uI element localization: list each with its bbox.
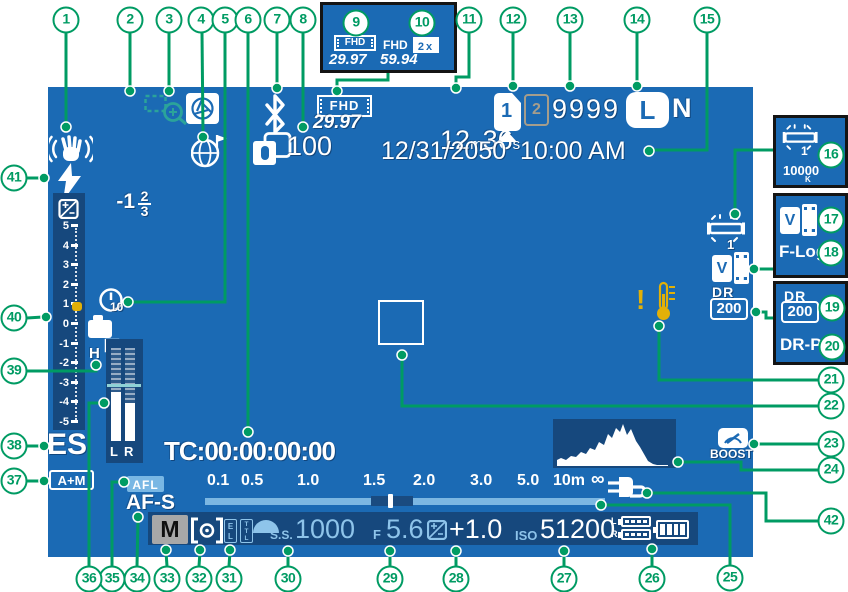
- ev-major-tick: [71, 381, 78, 384]
- distance-label: 0.5: [241, 472, 263, 490]
- callout-12: 12: [500, 7, 527, 34]
- afl-badge: AFL: [127, 476, 164, 492]
- meter-right-dim: [125, 348, 135, 403]
- callout-33: 33: [154, 566, 181, 592]
- movie-rate-1: 29.97: [329, 51, 367, 68]
- ev-major-tick: [71, 342, 78, 345]
- ev-major-tick: [71, 244, 78, 247]
- wb-kelvin-unit: K: [805, 175, 811, 184]
- callout-14: 14: [624, 7, 651, 34]
- movie-fhd-2: FHD: [383, 38, 408, 52]
- exposure-comp-value: +1.0: [449, 514, 502, 545]
- location-icon: [191, 133, 227, 169]
- callout-41: 41: [1, 165, 28, 192]
- exposure-comp-icon: [427, 520, 447, 540]
- white-balance-inset: 1 16 10000 K: [773, 115, 848, 188]
- callout-2: 2: [117, 7, 144, 34]
- callout-7: 7: [264, 7, 291, 34]
- callout-13: 13: [557, 7, 584, 34]
- callout-29: 29: [377, 566, 404, 592]
- ev-major-tick: [71, 224, 78, 227]
- callout-38: 38: [1, 433, 28, 460]
- afl-label: AFL: [132, 478, 158, 492]
- distance-label: 1.0: [297, 472, 319, 490]
- callout-17: 17: [818, 207, 845, 234]
- exposure-comp-icon: [58, 199, 79, 219]
- callout-35: 35: [99, 566, 126, 592]
- callout-8: 8: [290, 7, 317, 34]
- battery-right-icon: [621, 529, 651, 540]
- callout-23: 23: [818, 431, 845, 458]
- film-sim-letter: V: [780, 207, 800, 234]
- shooting-mode-badge: M: [152, 515, 188, 544]
- ev-tick: 2: [55, 279, 69, 291]
- callout-10: 10: [409, 10, 436, 37]
- meter-reference-line: [107, 384, 141, 387]
- histogram: [553, 419, 676, 468]
- dr-priority-label: DR-P: [780, 335, 822, 355]
- focus-position-marker: [388, 494, 393, 508]
- image-quality: N: [672, 93, 692, 124]
- flash-comp-fraction: 23: [138, 190, 151, 218]
- meter-label-l: L: [110, 444, 118, 459]
- callout-25: 25: [717, 565, 744, 592]
- image-transfer-icon: [252, 132, 292, 166]
- callout-21: 21: [818, 367, 845, 394]
- distance-label: 5.0: [517, 472, 539, 490]
- wb-preset-number: 1: [801, 144, 808, 158]
- flash-compensation: -123: [93, 166, 151, 242]
- manual-page: -123 100 FHD 29.97: [0, 0, 848, 592]
- ev-tick: -2: [55, 357, 69, 369]
- callout-18: 18: [818, 240, 845, 267]
- callout-19: 19: [819, 295, 846, 322]
- ev-tick: 4: [55, 240, 69, 252]
- datetime: 12/31/2050 10:00 AM: [381, 137, 626, 166]
- shutter-speed-value: 1000: [295, 514, 355, 545]
- dynamic-range-value: 200: [710, 298, 748, 320]
- callout-4: 4: [188, 7, 215, 34]
- movie-mode-inset: 9 10 FHD 29.97 FHD 2x 59.94: [320, 2, 457, 73]
- meter-label-r: R: [124, 444, 133, 459]
- boost-mode-icon: [717, 427, 749, 449]
- card-slot2-icon: 2: [524, 94, 549, 126]
- film-simulation-inset: V 17 F-Log 18: [773, 193, 848, 278]
- meter-right-bar: [125, 403, 135, 441]
- callout-31: 31: [216, 566, 243, 592]
- ev-tick: 1: [55, 298, 69, 310]
- shooting-mode-letter: M: [160, 516, 179, 542]
- iso-label: ISO: [515, 528, 537, 543]
- callout-37: 37: [1, 468, 28, 495]
- movie-fhd-icon: FHD: [334, 35, 376, 51]
- bluetooth-icon: [262, 91, 288, 137]
- ev-tick: -5: [55, 416, 69, 428]
- callout-40: 40: [1, 305, 28, 332]
- temperature-warning-icon: [653, 281, 677, 321]
- self-timer-value: 10: [110, 300, 123, 314]
- image-size-letter: L: [640, 95, 656, 125]
- callout-30: 30: [275, 566, 302, 592]
- card-slot2-number: 2: [532, 101, 541, 118]
- film-perforation: [371, 39, 373, 47]
- callout-22: 22: [818, 393, 845, 420]
- callout-34: 34: [124, 566, 151, 592]
- power-supply-icon: [606, 473, 654, 505]
- callout-11: 11: [456, 7, 483, 34]
- ev-major-tick: [71, 263, 78, 266]
- aperture-value: 5.6: [386, 514, 424, 545]
- callout-1: 1: [53, 7, 80, 34]
- callout-16: 16: [818, 142, 845, 169]
- distance-label-infinity: ∞: [591, 469, 605, 491]
- ev-major-tick: [71, 361, 78, 364]
- aperture-label: F: [373, 527, 381, 542]
- ev-tick: -3: [55, 377, 69, 389]
- ev-tick: 0: [55, 318, 69, 330]
- distance-label: 2.0: [413, 472, 435, 490]
- ev-marker: [72, 302, 82, 311]
- ev-major-tick: [71, 322, 78, 325]
- callout-3: 3: [156, 7, 183, 34]
- callout-32: 32: [186, 566, 213, 592]
- callout-39: 39: [1, 358, 28, 385]
- shutter-aperture-icon: [186, 93, 219, 124]
- distance-label: 3.0: [470, 472, 492, 490]
- ev-major-tick: [71, 400, 78, 403]
- ev-tick: -4: [55, 396, 69, 408]
- ev-tick: 5: [55, 220, 69, 232]
- timecode: TC:00:00:00:00: [164, 436, 335, 467]
- dynamic-range-inset: DR 200 19 DR-P 20: [773, 281, 848, 365]
- film-sim-film: [734, 252, 749, 284]
- shutter-speed-label: S.S.: [270, 528, 293, 542]
- digital-zoom-icon: [144, 91, 188, 125]
- callout-15: 15: [694, 7, 721, 34]
- callout-6: 6: [235, 7, 262, 34]
- callout-20: 20: [819, 334, 846, 361]
- film-simulation-icon: V: [780, 204, 820, 236]
- callout-27: 27: [551, 566, 578, 592]
- focus-ring-mode-label: A+M: [58, 473, 86, 488]
- card-slot1-number: 1: [501, 100, 512, 123]
- dynamic-range-value: 200: [781, 301, 819, 323]
- frames-remaining: 9999: [552, 94, 620, 125]
- callout-28: 28: [443, 566, 470, 592]
- film-sim-film: [802, 204, 817, 236]
- battery-left-icon: [621, 516, 651, 527]
- movie-rate-2: 59.94: [380, 51, 418, 68]
- ae-lock-badge: EL: [224, 519, 237, 543]
- callout-24: 24: [818, 457, 845, 484]
- drive-mode-label: H: [89, 345, 100, 362]
- image-size-badge: L: [626, 92, 669, 128]
- focus-frame: [378, 300, 424, 345]
- wb-kelvin: 10000: [783, 163, 819, 178]
- callout-36: 36: [76, 566, 103, 592]
- transfer-count: 100: [287, 131, 332, 162]
- film-perforation: [337, 39, 339, 47]
- iso-value: 51200: [540, 514, 615, 545]
- focus-ring-mode-badge: A+M: [49, 470, 94, 490]
- battery-right-label: R: [611, 529, 618, 539]
- movie-2x-label: 2x: [418, 41, 434, 53]
- film-simulation-icon: V: [712, 252, 752, 284]
- distance-label: 10m: [553, 472, 585, 490]
- ev-major-tick: [71, 283, 78, 286]
- distance-label: 1.5: [363, 472, 385, 490]
- callout-26: 26: [639, 566, 666, 592]
- mic-level-meters: L R: [106, 339, 143, 463]
- temperature-warning-mark: !: [636, 284, 645, 316]
- film-perforation: [367, 99, 369, 113]
- film-perforation: [320, 99, 322, 113]
- battery-left-label: L: [611, 516, 617, 526]
- battery-body-icon: [656, 520, 689, 539]
- callout-42: 42: [818, 508, 845, 535]
- callout-9: 9: [343, 10, 370, 37]
- ttl-lock-badge: TTL: [240, 519, 253, 543]
- meter-left-bar: [111, 392, 121, 441]
- white-balance-preset: 1: [727, 237, 734, 252]
- ev-major-tick: [71, 420, 78, 423]
- distance-label: 0.1: [207, 472, 229, 490]
- ev-tick: 3: [55, 259, 69, 271]
- shutter-type-label: ES: [47, 428, 87, 462]
- metering-icon: [190, 517, 224, 544]
- ev-tick: -1: [55, 338, 69, 350]
- movie-frame-rate: 29.97: [313, 112, 361, 134]
- film-sim-letter: V: [712, 255, 732, 282]
- boost-mode-label: BOOST: [710, 447, 753, 461]
